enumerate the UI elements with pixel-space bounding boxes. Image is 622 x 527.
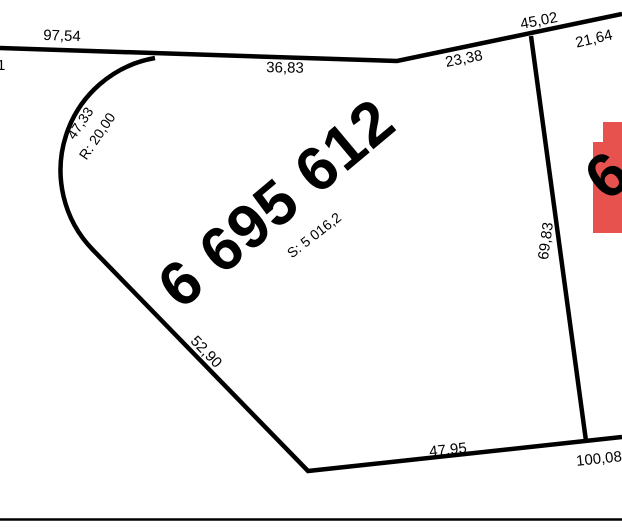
dimension-label-top-middle: 36,83 — [266, 60, 304, 76]
dimension-label-top-left: 97,54 — [43, 28, 81, 44]
dimension-label-edge-partial: 1 — [0, 58, 5, 73]
survey-linework — [0, 0, 622, 527]
map-canvas[interactable]: 97,54 1 36,83 23,38 45,02 21,64 69,83 47… — [0, 0, 622, 527]
dimension-label-bottom: 47,95 — [429, 441, 468, 460]
